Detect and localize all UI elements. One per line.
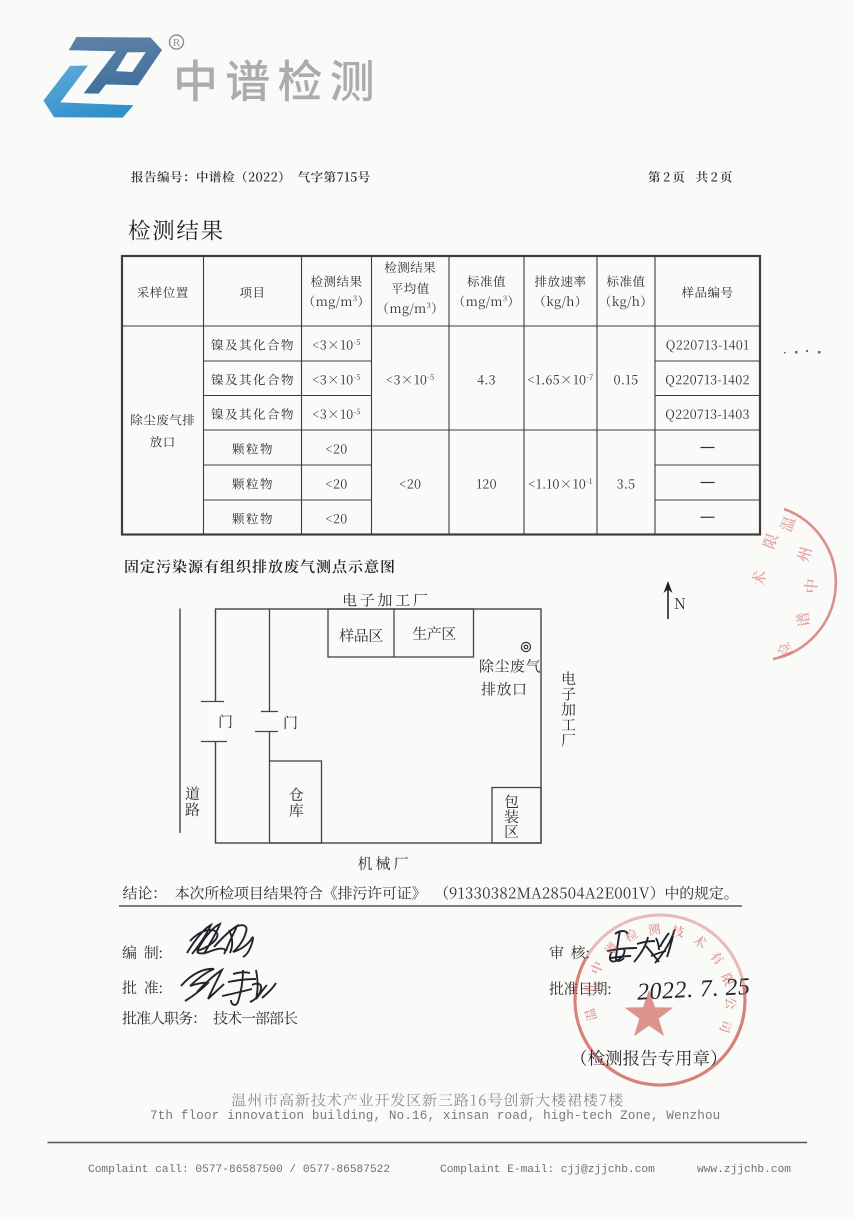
svg-text:Complaint call: 0577-86587500: Complaint call: 0577-86587500 / 0577-865… <box>88 1164 390 1176</box>
svg-text:7th floor innovation building,: 7th floor innovation building, No.16, xi… <box>150 1109 720 1123</box>
svg-text:www.zjjchb.com: www.zjjchb.com <box>697 1164 791 1176</box>
svg-text:R: R <box>173 37 181 49</box>
svg-text:Complaint E-mail: cjj@zjjchb.c: Complaint E-mail: cjj@zjjchb.com <box>440 1164 655 1176</box>
